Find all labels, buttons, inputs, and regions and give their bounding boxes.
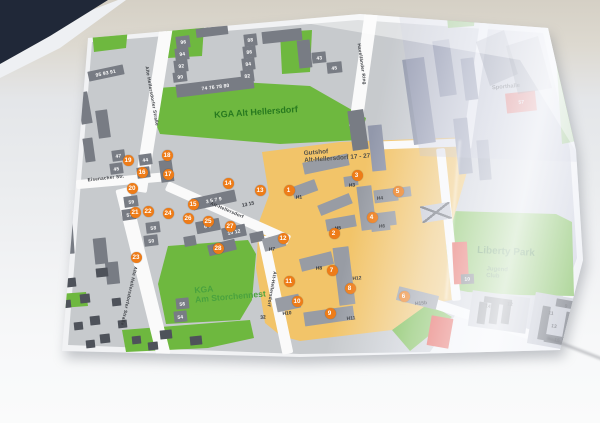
small-dark-building (58, 256, 69, 266)
map-sheet: 9694929074 76 78 808886848295 93 9147454… (0, 0, 600, 423)
glare-overlay (0, 0, 600, 423)
map-sheet-wrap: 9694929074 76 78 808886848295 93 9147454… (0, 0, 600, 423)
small-dark-building (54, 234, 64, 243)
